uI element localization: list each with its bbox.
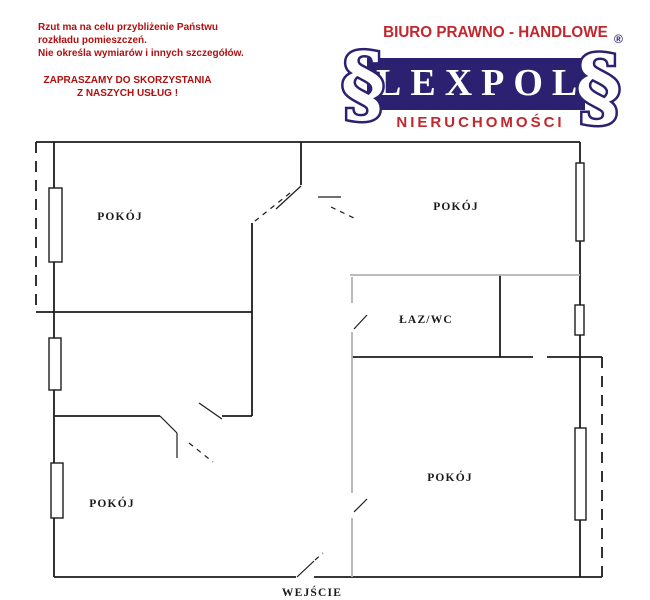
- door-leaf: [199, 403, 222, 419]
- window-symbol: [575, 428, 586, 520]
- floorplan-drawing: POKÓJPOKÓJŁAZ/WCPOKÓJPOKÓJWEJŚCIE§§: [0, 0, 650, 600]
- door-leaf: [160, 416, 177, 433]
- door-leaf: [354, 499, 367, 512]
- room-label: POKÓJ: [427, 470, 473, 484]
- door-leaf: [297, 561, 314, 577]
- door-leaf: [354, 315, 367, 329]
- room-label: POKÓJ: [89, 496, 135, 510]
- door-swing-arc: [255, 193, 290, 221]
- section-symbol-icon: §: [576, 37, 621, 138]
- door-swing-arc: [189, 443, 213, 462]
- door-swing-arc: [331, 207, 356, 219]
- room-label: WEJŚCIE: [282, 585, 342, 599]
- room-label: POKÓJ: [97, 209, 143, 223]
- window-symbol: [576, 163, 584, 241]
- window-symbol: [51, 463, 63, 518]
- door-leaf: [276, 186, 301, 209]
- window-symbol: [575, 305, 584, 335]
- section-symbol-icon: §: [341, 34, 385, 133]
- room-label: POKÓJ: [433, 199, 479, 213]
- door-swing-arc: [315, 553, 323, 560]
- scanned-floorplan-flyer: Rzut ma na celu przybliżenie Państwu roz…: [0, 0, 650, 600]
- room-label: ŁAZ/WC: [399, 314, 453, 326]
- window-symbol: [49, 338, 61, 390]
- window-symbol: [49, 188, 62, 262]
